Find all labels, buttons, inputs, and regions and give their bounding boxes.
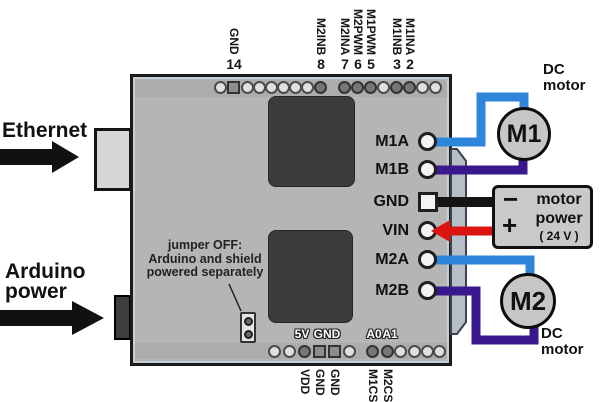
pin-name-vdd: VDD — [297, 369, 312, 394]
pin-name-m2cs: M2CS — [380, 369, 395, 402]
dc-motor-caption-bottom: DC motor — [541, 326, 584, 358]
pin-name-gnd-b1: GND — [312, 369, 327, 396]
header-pin — [377, 81, 390, 94]
arduino-power-label-line1: Arduino — [5, 262, 85, 282]
vin-terminal — [418, 221, 437, 240]
jumper-note-line2: Arduino and shield — [135, 253, 275, 267]
m2a-label: M2A — [330, 251, 409, 269]
jumper-hole — [244, 317, 253, 326]
jumper-note: jumper OFF: Arduino and shield powered s… — [135, 239, 275, 280]
gnd-pin — [328, 345, 341, 358]
arduino-power-arrow — [0, 301, 104, 335]
ethernet-connector — [94, 128, 132, 191]
ethernet-arrow — [0, 141, 79, 173]
pin-num-14: 14 — [221, 56, 247, 72]
m1cs-pin — [366, 345, 379, 358]
vdd-pin — [298, 345, 311, 358]
gnd-14-pin — [227, 81, 240, 94]
m1b-label: M1B — [330, 161, 409, 179]
silk-label-a1: A1 — [365, 327, 415, 341]
pin-name-m1cs: M1CS — [365, 369, 380, 402]
pin-num-2: 2 — [397, 56, 423, 72]
dc-caption-line: DC — [541, 326, 584, 342]
header-pin — [394, 345, 407, 358]
vin-label: VIN — [330, 222, 409, 240]
driver-chip-2 — [268, 230, 353, 323]
header-pin — [429, 81, 442, 94]
ethernet-label: Ethernet — [2, 121, 87, 141]
motor-shield-board: 5V GND A0 A1 — [130, 74, 452, 366]
gnd-terminal — [418, 192, 438, 212]
pin-name-m1ina: M1INA — [402, 18, 417, 55]
m1pwm-pin — [364, 81, 377, 94]
m2cs-pin — [381, 345, 394, 358]
pin-name-gnd-b2: GND — [327, 369, 342, 396]
pin-name-m2inb: M2INB — [313, 18, 328, 55]
m2a-terminal — [418, 250, 437, 269]
dc-caption-line: motor — [541, 342, 584, 358]
pin-num-5: 5 — [358, 56, 384, 72]
m2inb-pin — [314, 81, 327, 94]
power-jumper — [240, 312, 256, 343]
gnd-pin — [313, 345, 326, 358]
jumper-note-line1: jumper OFF: — [135, 239, 275, 253]
motor-m1: M1 — [497, 107, 551, 161]
arduino-power-label-line2: power — [5, 282, 85, 302]
dc-motor-caption-top: DC motor — [543, 62, 586, 94]
plus-sign: + — [502, 210, 517, 241]
jumper-note-line3: powered separately — [135, 266, 275, 280]
gnd-label: GND — [330, 193, 409, 211]
header-pin — [268, 345, 281, 358]
m1inb-pin — [390, 81, 403, 94]
motor-power-supply: − + motor power ( 24 V ) — [492, 185, 593, 249]
header-pin — [214, 81, 227, 94]
header-pin — [433, 345, 446, 358]
arduino-pcb-tab — [451, 149, 466, 334]
m2b-terminal — [418, 281, 437, 300]
header-pin — [408, 345, 421, 358]
power-box-line2: power — [529, 210, 589, 228]
dc-caption-line: DC — [543, 62, 586, 78]
m2b-label: M2B — [330, 282, 409, 300]
m1a-terminal — [418, 132, 437, 151]
header-pin — [283, 345, 296, 358]
jumper-hole — [244, 330, 253, 339]
arduino-power-jack — [114, 295, 131, 340]
pin-name-gnd: GND — [226, 28, 241, 55]
power-box-voltage: ( 24 V ) — [529, 229, 589, 243]
power-box-line1: motor — [529, 191, 589, 209]
m2pwm-pin — [351, 81, 364, 94]
header-pin — [301, 81, 314, 94]
arduino-power-label: Arduino power — [5, 262, 85, 302]
motor-shield-wiring-diagram: 5V GND A0 A1 M1A M1B GND VIN M2A M2B GND… — [0, 0, 600, 402]
m1b-terminal — [418, 160, 437, 179]
pin-name-m1pwm: M1PWM — [363, 9, 378, 55]
motor-m2: M2 — [500, 273, 556, 329]
m2ina-pin — [338, 81, 351, 94]
dc-caption-line: motor — [543, 78, 586, 94]
m1ina-pin — [403, 81, 416, 94]
m1a-label: M1A — [330, 133, 409, 151]
silk-label-gnd: GND — [302, 327, 352, 341]
pin-num-8: 8 — [308, 56, 334, 72]
header-pin — [416, 81, 429, 94]
header-pin — [343, 345, 356, 358]
